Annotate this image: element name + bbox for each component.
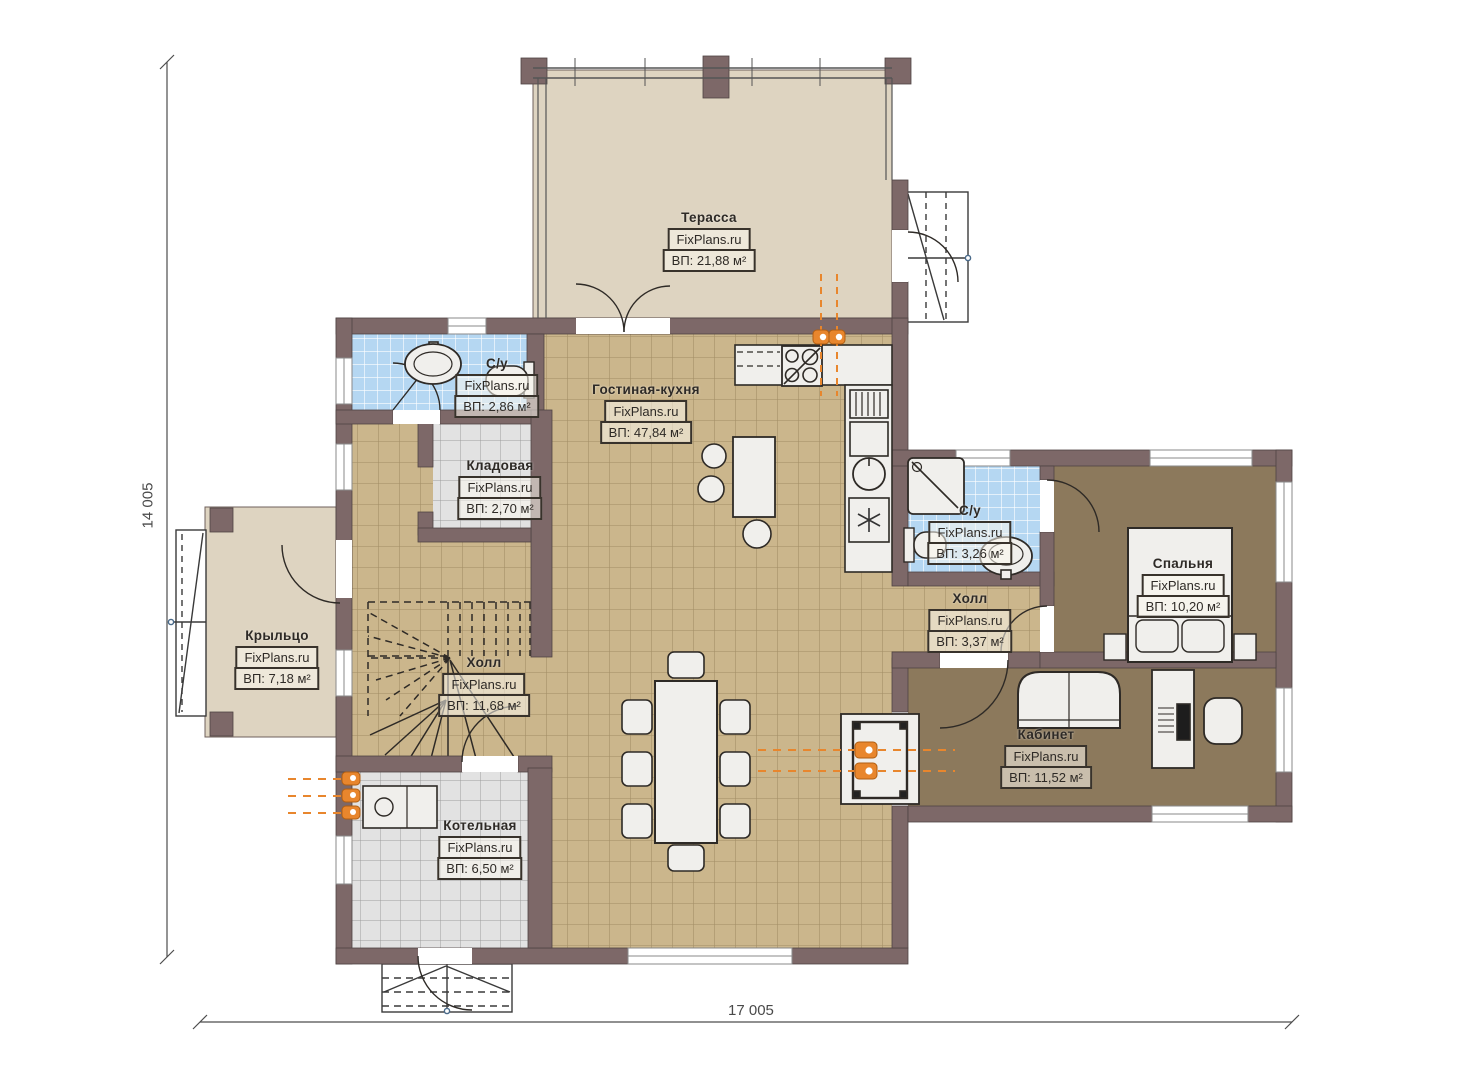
- pillow: [1182, 620, 1224, 652]
- chair: [668, 845, 704, 871]
- room-name: С/у: [959, 503, 981, 518]
- floor-plan-canvas: 14 005 17 005 Терасса FixPlans.ru ВП: 21…: [0, 0, 1473, 1080]
- room-name: Гостиная-кухня: [592, 382, 700, 397]
- area-box: ВП: 6,50 м²: [437, 857, 522, 880]
- terrace-post: [885, 58, 911, 84]
- chair: [720, 752, 750, 786]
- watermark-box: FixPlans.ru: [455, 374, 538, 397]
- kitchen-sink-icon: [853, 458, 885, 490]
- chair: [622, 700, 652, 734]
- chair: [668, 652, 704, 678]
- room-label-living-kitchen: Гостиная-кухня FixPlans.ru ВП: 47,84 м²: [592, 382, 700, 444]
- boiler-pipes: [288, 772, 362, 819]
- watermark-box: FixPlans.ru: [667, 228, 750, 251]
- porch-post: [210, 508, 233, 532]
- desk: [1152, 670, 1194, 768]
- watermark-box: FixPlans.ru: [928, 521, 1011, 544]
- room-label-storage: Кладовая FixPlans.ru ВП: 2,70 м²: [457, 458, 542, 520]
- watermark-box: FixPlans.ru: [604, 400, 687, 423]
- stool: [702, 444, 726, 468]
- chair: [622, 804, 652, 838]
- room-name: Крыльцо: [245, 628, 309, 643]
- terrace-post: [703, 56, 729, 98]
- porch-post: [210, 712, 233, 736]
- floor-plan-drawing: [0, 0, 1473, 1080]
- room-label-bathroom-2: С/у FixPlans.ru ВП: 3,26 м²: [927, 503, 1012, 565]
- area-box: ВП: 47,84 м²: [600, 421, 693, 444]
- watermark-box: FixPlans.ru: [928, 609, 1011, 632]
- exterior-stair-entrance: [382, 964, 512, 1014]
- boiler-unit: [363, 786, 437, 828]
- chair: [720, 700, 750, 734]
- dimension-width-label: 17 005: [728, 1002, 774, 1019]
- exterior-stair-terrace: [906, 192, 971, 322]
- pillow: [1136, 620, 1178, 652]
- dimension-height-label: 14 005: [139, 483, 156, 529]
- room-label-bathroom-1: С/у FixPlans.ru ВП: 2,86 м²: [454, 356, 539, 418]
- room-name: Терасса: [681, 210, 737, 225]
- watermark-box: FixPlans.ru: [458, 476, 541, 499]
- area-box: ВП: 21,88 м²: [663, 249, 756, 272]
- stool: [698, 476, 724, 502]
- nightstand: [1234, 634, 1256, 660]
- room-label-porch: Крыльцо FixPlans.ru ВП: 7,18 м²: [234, 628, 319, 690]
- area-box: ВП: 7,18 м²: [234, 667, 319, 690]
- area-box: ВП: 2,70 м²: [457, 497, 542, 520]
- terrace-post: [521, 58, 547, 84]
- watermark-box: FixPlans.ru: [438, 836, 521, 859]
- area-box: ВП: 2,86 м²: [454, 395, 539, 418]
- area-box: ВП: 11,68 м²: [438, 694, 530, 717]
- sofa: [1018, 672, 1120, 728]
- area-box: ВП: 11,52 м²: [1000, 766, 1092, 789]
- area-box: ВП: 3,37 м²: [927, 630, 1012, 653]
- area-box: ВП: 10,20 м²: [1137, 595, 1230, 618]
- fridge-icon: [849, 498, 889, 542]
- terrace-floor: [533, 70, 892, 318]
- room-label-boiler-room: Котельная FixPlans.ru ВП: 6,50 м²: [437, 818, 522, 880]
- chair: [720, 804, 750, 838]
- room-label-hall-wing: Холл FixPlans.ru ВП: 3,37 м²: [927, 591, 1012, 653]
- room-name: Холл: [466, 655, 501, 670]
- watermark-box: FixPlans.ru: [442, 673, 525, 696]
- room-label-hall-main: Холл FixPlans.ru ВП: 11,68 м²: [438, 655, 530, 717]
- office-chair: [1204, 698, 1242, 744]
- watermark-box: FixPlans.ru: [1141, 574, 1224, 597]
- room-name: Холл: [952, 591, 987, 606]
- room-label-office: Кабинет FixPlans.ru ВП: 11,52 м²: [1000, 727, 1092, 789]
- dining-table: [655, 681, 717, 843]
- nightstand: [1104, 634, 1126, 660]
- porch-floor: [205, 507, 336, 737]
- chair: [622, 752, 652, 786]
- stove-icon: [782, 346, 822, 386]
- stool: [743, 520, 771, 548]
- room-name: С/у: [486, 356, 508, 371]
- room-name: Кладовая: [466, 458, 533, 473]
- monitor-icon: [1177, 704, 1190, 740]
- dish-rack-icon: [850, 390, 888, 456]
- exterior-stair-porch: [168, 530, 206, 716]
- room-label-terrace: Терасса FixPlans.ru ВП: 21,88 м²: [663, 210, 756, 272]
- room-label-bedroom: Спальня FixPlans.ru ВП: 10,20 м²: [1137, 556, 1230, 618]
- fireplace: [841, 714, 919, 804]
- area-box: ВП: 3,26 м²: [927, 542, 1012, 565]
- watermark-box: FixPlans.ru: [235, 646, 318, 669]
- watermark-box: FixPlans.ru: [1004, 745, 1087, 768]
- room-name: Спальня: [1153, 556, 1213, 571]
- room-name: Кабинет: [1018, 727, 1075, 742]
- room-name: Котельная: [443, 818, 516, 833]
